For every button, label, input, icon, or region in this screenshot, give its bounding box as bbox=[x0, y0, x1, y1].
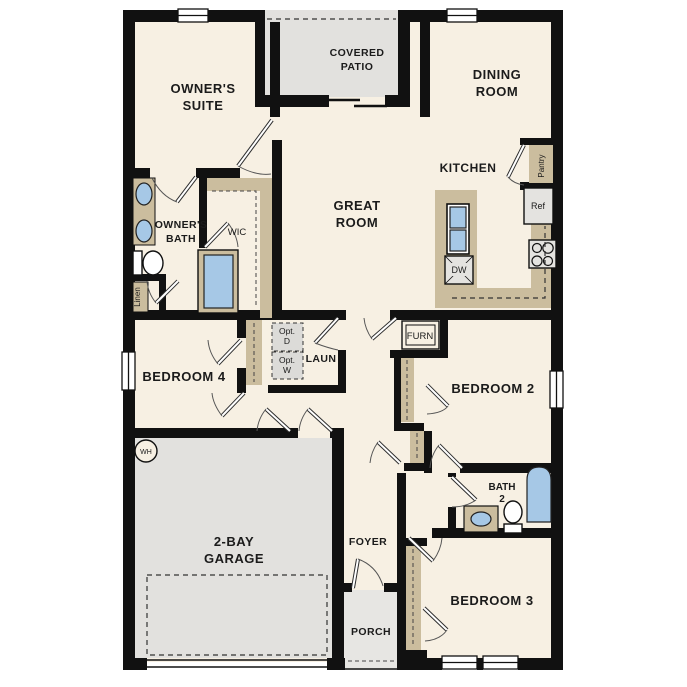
garage-label: 2-BAY bbox=[214, 534, 254, 549]
window bbox=[550, 371, 563, 408]
linen-label: Linen bbox=[133, 287, 142, 307]
opt-dryer-label: Opt. bbox=[279, 326, 295, 336]
porch-label: PORCH bbox=[351, 626, 391, 638]
toilet-tank-icon bbox=[133, 251, 142, 275]
owners-bath-label: OWNER'S bbox=[155, 219, 208, 231]
kitchen-label: KITCHEN bbox=[440, 161, 497, 175]
great-room-label: GREAT bbox=[333, 198, 380, 213]
window bbox=[442, 656, 477, 669]
bath2-label: 2 bbox=[499, 494, 505, 505]
dining-room-label: ROOM bbox=[476, 84, 518, 99]
opt-washer-label: Opt. bbox=[279, 355, 295, 365]
garage-label: GARAGE bbox=[204, 551, 264, 566]
opt-dryer-label: D bbox=[284, 336, 290, 346]
bath2-label: BATH bbox=[488, 482, 515, 493]
dining-room-label: DINING bbox=[473, 67, 522, 82]
bath2-sink-icon bbox=[471, 512, 491, 526]
furnace-label: FURN bbox=[407, 331, 434, 342]
toilet-icon bbox=[504, 501, 522, 523]
window bbox=[122, 352, 135, 390]
laundry-label: LAUN bbox=[306, 353, 337, 365]
toilet-icon bbox=[143, 251, 163, 275]
opt-washer-label: W bbox=[283, 365, 291, 375]
window bbox=[447, 9, 477, 22]
refrigerator-label: Ref bbox=[531, 201, 546, 211]
window bbox=[483, 656, 518, 669]
dishwasher-label: DW bbox=[452, 265, 467, 275]
covered-patio-label: PATIO bbox=[341, 61, 374, 73]
owners-bath-label: BATH bbox=[166, 233, 196, 245]
great-room-label: ROOM bbox=[336, 215, 378, 230]
window bbox=[178, 9, 208, 22]
shower-icon bbox=[204, 255, 233, 308]
bedroom4-label: BEDROOM 4 bbox=[142, 369, 226, 384]
owners-suite-label: OWNER'S bbox=[170, 81, 235, 96]
bathtub-icon bbox=[527, 467, 551, 522]
foyer-label: FOYER bbox=[349, 536, 387, 548]
bedroom3-label: BEDROOM 3 bbox=[450, 593, 533, 608]
wic-shelf-top bbox=[207, 178, 262, 191]
bedroom2-label: BEDROOM 2 bbox=[451, 381, 534, 396]
wic-shelf-side bbox=[260, 178, 272, 318]
floor-plan-drawing: OWNER'S SUITE COVERED PATIO DINING ROOM … bbox=[0, 0, 687, 687]
sink-bowl-icon bbox=[450, 207, 466, 228]
wic-label: WIC bbox=[228, 227, 247, 238]
water-heater-label: WH bbox=[140, 449, 152, 456]
owners-suite-label: SUITE bbox=[183, 98, 224, 113]
bath-sink-icon bbox=[136, 220, 152, 242]
floor-plan-page: OWNER'S SUITE COVERED PATIO DINING ROOM … bbox=[0, 0, 687, 687]
bath-sink-icon bbox=[136, 183, 152, 205]
toilet-tank-icon bbox=[504, 524, 522, 533]
covered-patio-label: COVERED bbox=[330, 47, 385, 59]
sink-bowl-icon bbox=[450, 230, 466, 251]
pantry-label: Pantry bbox=[537, 154, 546, 177]
